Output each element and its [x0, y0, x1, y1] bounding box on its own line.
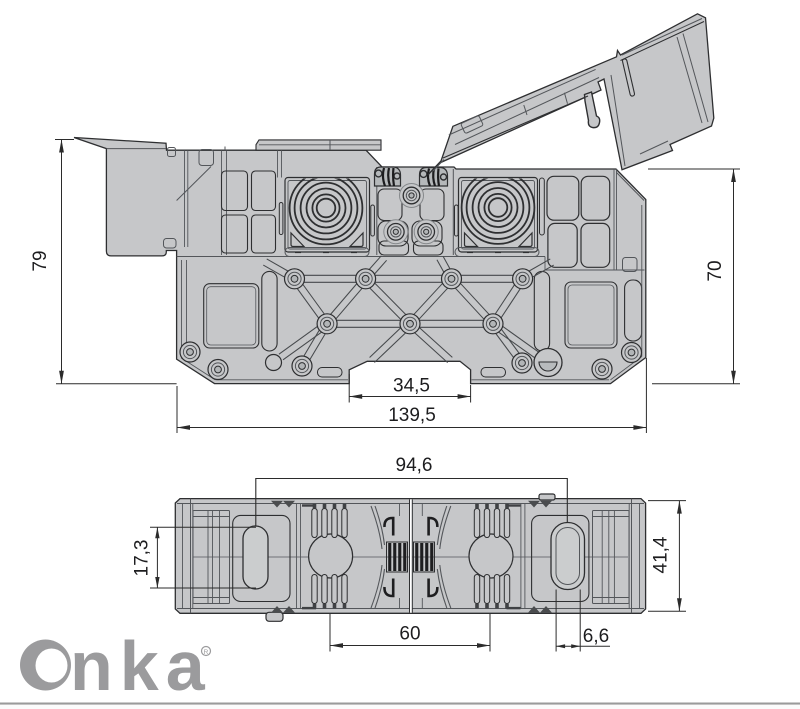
svg-text:70: 70	[705, 260, 726, 281]
svg-text:79: 79	[30, 250, 51, 271]
svg-text:94,6: 94,6	[396, 455, 433, 476]
svg-text:60: 60	[399, 624, 420, 645]
svg-text:6,6: 6,6	[583, 626, 609, 647]
svg-text:nka: nka	[70, 627, 212, 705]
svg-text:139,5: 139,5	[388, 405, 436, 426]
svg-text:17,3: 17,3	[132, 540, 153, 577]
svg-text:41,4: 41,4	[651, 536, 672, 573]
svg-text:R: R	[204, 649, 209, 656]
svg-text:34,5: 34,5	[393, 376, 430, 397]
